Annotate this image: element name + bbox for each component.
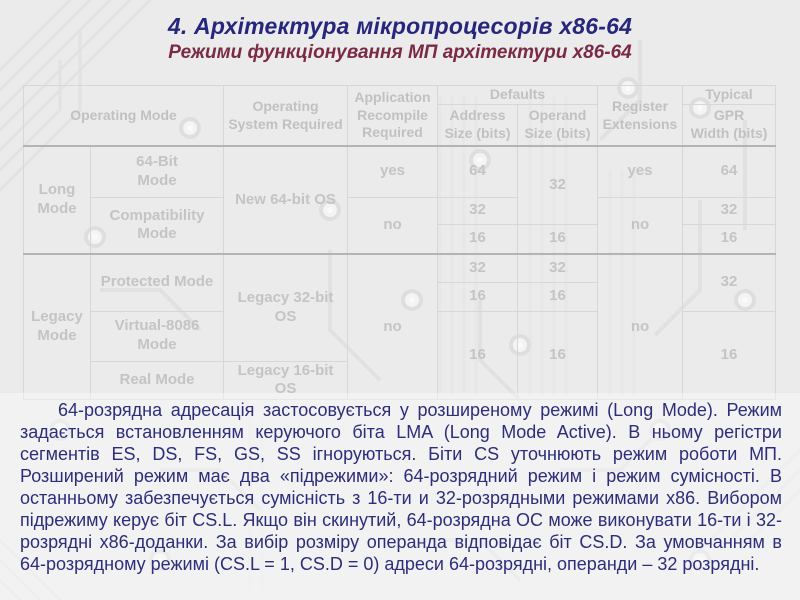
cell-addr-compat-16: 16 xyxy=(438,224,518,254)
cell-compatibility-mode: Compatibility Mode xyxy=(91,197,224,254)
cell-gpr-legacy-16: 16 xyxy=(683,311,776,400)
slide-subtitle: Режими функціонування МП архітектури х86… xyxy=(0,42,800,64)
cell-operand-prot-32: 32 xyxy=(518,254,598,282)
header-operating-mode: Operating Mode xyxy=(24,86,224,147)
cell-recompile-64: yes xyxy=(348,146,438,197)
cell-recompile-compat: no xyxy=(348,197,438,254)
cell-operand-legacy-16: 16 xyxy=(518,311,598,400)
cell-addr-64: 64 xyxy=(438,146,518,197)
cell-addr-legacy-16: 16 xyxy=(438,311,518,400)
cell-gpr-prot-32: 32 xyxy=(683,254,776,311)
cell-addr-prot-16: 16 xyxy=(438,282,518,311)
cell-gpr-compat-16: 16 xyxy=(683,224,776,254)
header-register-extensions: Register Extensions xyxy=(598,86,683,147)
cell-gpr-64: 64 xyxy=(683,146,776,197)
header-typical: Typical xyxy=(683,86,776,105)
cell-64bit-mode: 64-Bit Mode xyxy=(91,146,224,197)
cell-regext-legacy: no xyxy=(598,254,683,400)
operating-modes-table: Operating Mode Operating System Required… xyxy=(23,85,776,400)
cell-virtual-8086-mode: Virtual-8086 Mode xyxy=(91,311,224,361)
cell-operand-prot-16: 16 xyxy=(518,282,598,311)
cell-addr-compat-32: 32 xyxy=(438,197,518,224)
presentation-slide: 4. Архітектура мікропроцесорів х86-64 Ре… xyxy=(0,0,800,600)
cell-operand-compat-16: 16 xyxy=(518,224,598,254)
cell-legacy-32bit-os: Legacy 32-bit OS xyxy=(224,254,348,361)
header-address-size: Address Size (bits) xyxy=(438,104,518,146)
cell-regext-compat: no xyxy=(598,197,683,254)
header-app-recompile: Application Recompile Required xyxy=(348,86,438,147)
header-gpr-width: GPR Width (bits) xyxy=(683,104,776,146)
cell-legacy-mode: Legacy Mode xyxy=(24,254,91,400)
cell-operand-32: 32 xyxy=(518,146,598,224)
slide-title: 4. Архітектура мікропроцесорів х86-64 xyxy=(0,13,800,40)
cell-regext-yes: yes xyxy=(598,146,683,197)
header-defaults: Defaults xyxy=(438,86,598,105)
cell-protected-mode: Protected Mode xyxy=(91,254,224,311)
cell-gpr-compat-32: 32 xyxy=(683,197,776,224)
header-os-required: Operating System Required xyxy=(224,86,348,147)
cell-addr-prot-32: 32 xyxy=(438,254,518,282)
cell-recompile-legacy: no xyxy=(348,254,438,400)
cell-long-mode: Long Mode xyxy=(24,146,91,254)
header-operand-size: Operand Size (bits) xyxy=(518,104,598,146)
body-paragraph: 64-розрядна адресація застосовується у р… xyxy=(20,399,782,575)
cell-new-64bit-os: New 64-bit OS xyxy=(224,146,348,254)
